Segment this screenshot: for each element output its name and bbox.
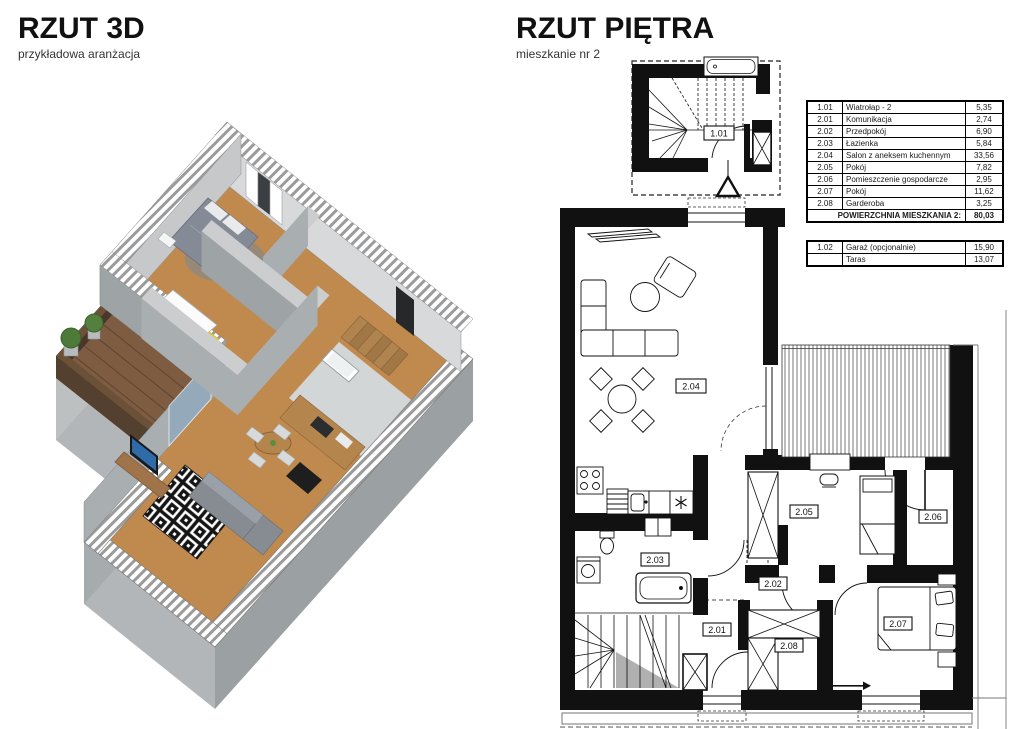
bathtub-upper bbox=[704, 57, 758, 76]
svg-text:2.02: 2.02 bbox=[764, 579, 782, 589]
terrace-door bbox=[721, 357, 778, 457]
table-row: 2.05Pokój7,82 bbox=[807, 162, 1003, 174]
wardrobe-208a bbox=[748, 610, 820, 638]
tv-shelf-2d bbox=[588, 229, 660, 242]
svg-text:2.05: 2.05 bbox=[795, 507, 813, 517]
svg-text:2.06: 2.06 bbox=[924, 512, 942, 522]
room-label-204: 2.04 bbox=[676, 379, 706, 393]
table-row: 2.02Przedpokój6,90 bbox=[807, 126, 1003, 138]
table-row: 2.08Garderoba3,25 bbox=[807, 198, 1003, 210]
room-label-101: 1.01 bbox=[704, 126, 734, 140]
window-bottom-1 bbox=[698, 690, 746, 721]
table-row: 1.02Garaż (opcjonalnie)15,90 bbox=[807, 241, 1003, 254]
room-label-203: 2.03 bbox=[641, 553, 669, 566]
coffee-table-2d bbox=[631, 283, 660, 312]
svg-text:2.07: 2.07 bbox=[889, 619, 907, 629]
armchair-2d bbox=[653, 255, 698, 298]
svg-text:2.04: 2.04 bbox=[682, 382, 700, 392]
entrance-arrow bbox=[717, 177, 739, 196]
shaft-x-box bbox=[753, 132, 771, 165]
wardrobe-205 bbox=[748, 472, 778, 558]
table-row: 2.04Salon z aneksem kuchennym33,56 bbox=[807, 150, 1003, 162]
table-row: 2.07Pokój11,62 bbox=[807, 186, 1003, 198]
room-label-202: 2.02 bbox=[759, 577, 787, 590]
table-row: 2.06Pomieszczenie gospodarcze2,95 bbox=[807, 174, 1003, 186]
svg-text:2.03: 2.03 bbox=[646, 555, 664, 565]
area-table: 1.01Wiatrołap - 25,35 2.01Komunikacja2,7… bbox=[806, 100, 1004, 223]
entrance-block: 1.01 bbox=[632, 57, 780, 196]
svg-text:2.01: 2.01 bbox=[708, 625, 726, 635]
kitchen-2d bbox=[577, 467, 693, 514]
shaft-box-stairs bbox=[683, 654, 707, 690]
room-label-207: 2.07 bbox=[884, 617, 912, 630]
render-3d bbox=[0, 0, 556, 729]
sofa-2d bbox=[581, 280, 678, 356]
room-label-208: 2.08 bbox=[775, 639, 803, 652]
table-row: 2.03Łazienka5,84 bbox=[807, 138, 1003, 150]
stairs-lower bbox=[575, 613, 693, 688]
dining-set-2d bbox=[590, 368, 655, 433]
table-total-row: POWIERZCHNIA MIESZKANIA 2:80,03 bbox=[807, 210, 1003, 223]
extra-area-table: 1.02Garaż (opcjonalnie)15,90 Taras13,07 bbox=[806, 240, 1004, 267]
table-row: 2.01Komunikacja2,74 bbox=[807, 114, 1003, 126]
svg-text:1.01: 1.01 bbox=[710, 129, 728, 139]
window-bottom-2 bbox=[858, 690, 924, 721]
wardrobe-208b bbox=[748, 638, 778, 690]
room-label-206: 2.06 bbox=[919, 510, 947, 523]
window-top bbox=[684, 198, 749, 227]
svg-text:2.08: 2.08 bbox=[780, 641, 798, 651]
room-label-201: 2.01 bbox=[703, 623, 731, 636]
plan-sheet: RZUT 3D przykładowa aranżacja RZUT PIĘTR… bbox=[0, 0, 1018, 729]
stairs-upper bbox=[649, 78, 756, 158]
table-row: 1.01Wiatrołap - 25,35 bbox=[807, 101, 1003, 114]
room-label-205: 2.05 bbox=[790, 505, 818, 518]
table-row: Taras13,07 bbox=[807, 254, 1003, 267]
